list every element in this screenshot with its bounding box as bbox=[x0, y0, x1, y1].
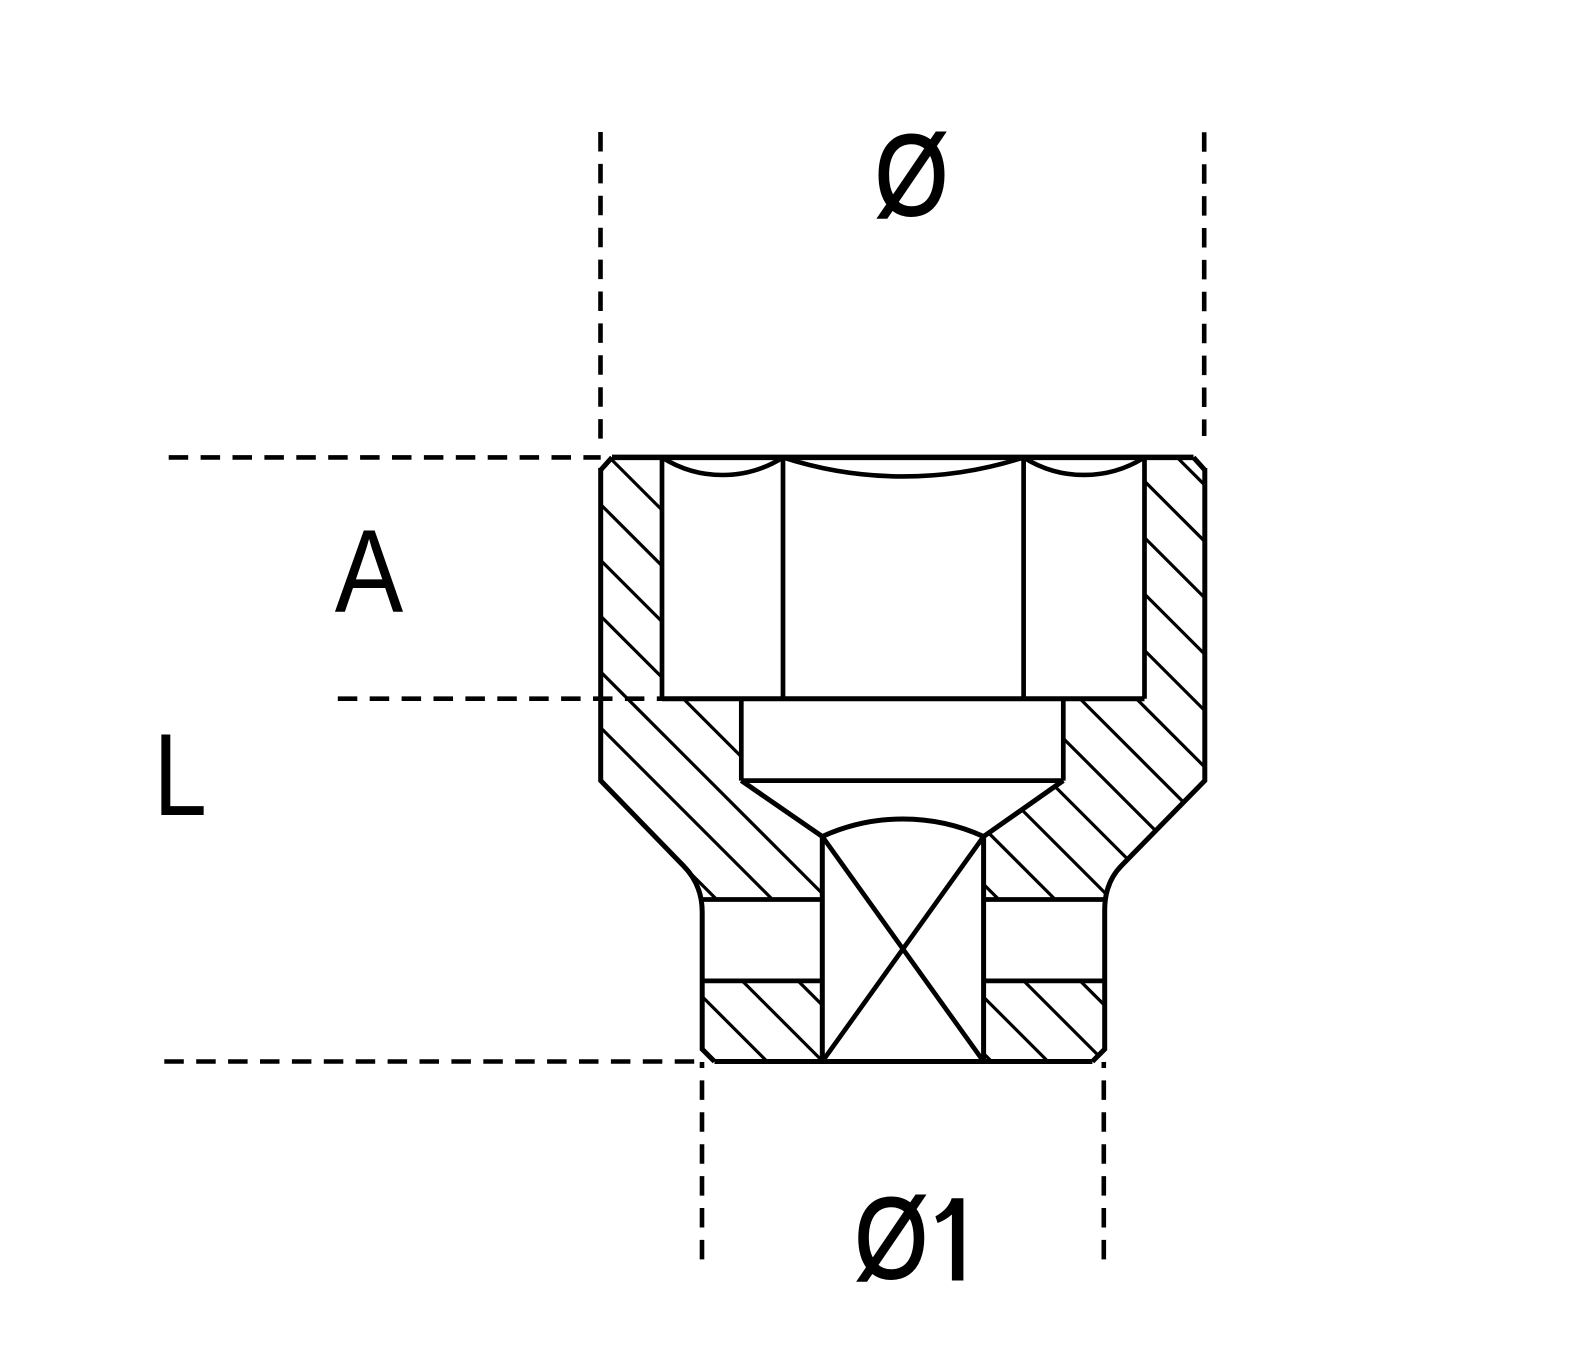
svg-text:Ø: Ø bbox=[855, 1175, 928, 1303]
svg-text:L: L bbox=[154, 709, 207, 840]
svg-text:A: A bbox=[335, 506, 404, 637]
svg-text:Ø: Ø bbox=[875, 112, 948, 240]
